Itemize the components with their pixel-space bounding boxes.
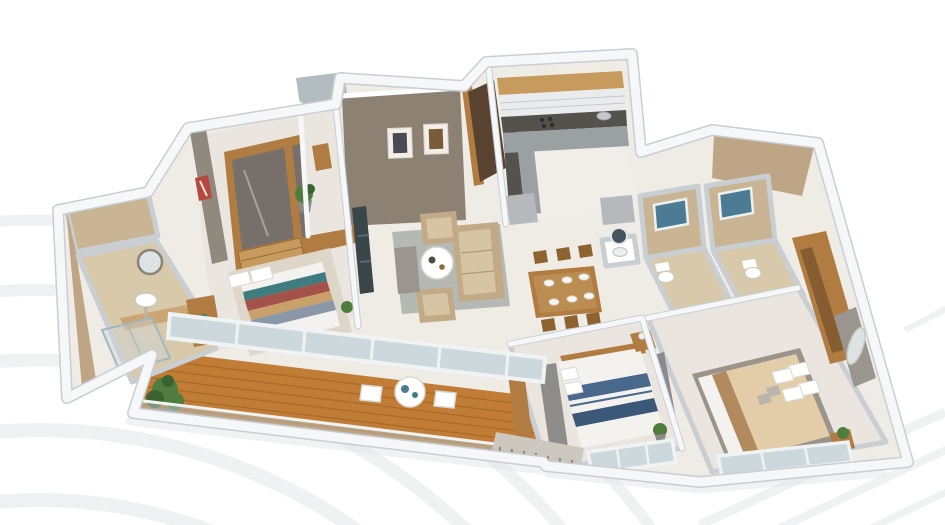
corner-plant	[341, 301, 353, 313]
picture-frame	[423, 124, 448, 155]
pillow	[564, 381, 583, 395]
bath2-window	[719, 188, 753, 219]
lounge-chair	[394, 246, 420, 294]
deck-chair-right	[434, 391, 456, 408]
pillow	[560, 367, 579, 381]
bistro-table	[395, 377, 425, 407]
washbasin	[135, 293, 157, 307]
coffee-table	[421, 247, 453, 279]
wash-basin	[613, 248, 627, 257]
floor-plan-svg	[0, 0, 945, 525]
kitchen-sink	[597, 112, 611, 120]
deck-chair-left	[360, 385, 382, 402]
floor-plan-render	[0, 0, 945, 525]
appliance-block	[506, 193, 538, 225]
appliance-block	[600, 195, 635, 225]
apartment	[58, 54, 908, 482]
picture-frame	[387, 128, 412, 159]
round-mirror	[138, 250, 162, 274]
feature-wall	[342, 88, 466, 226]
wash-mirror	[611, 228, 627, 244]
bath1-window	[654, 199, 688, 230]
kitchen	[497, 71, 636, 225]
